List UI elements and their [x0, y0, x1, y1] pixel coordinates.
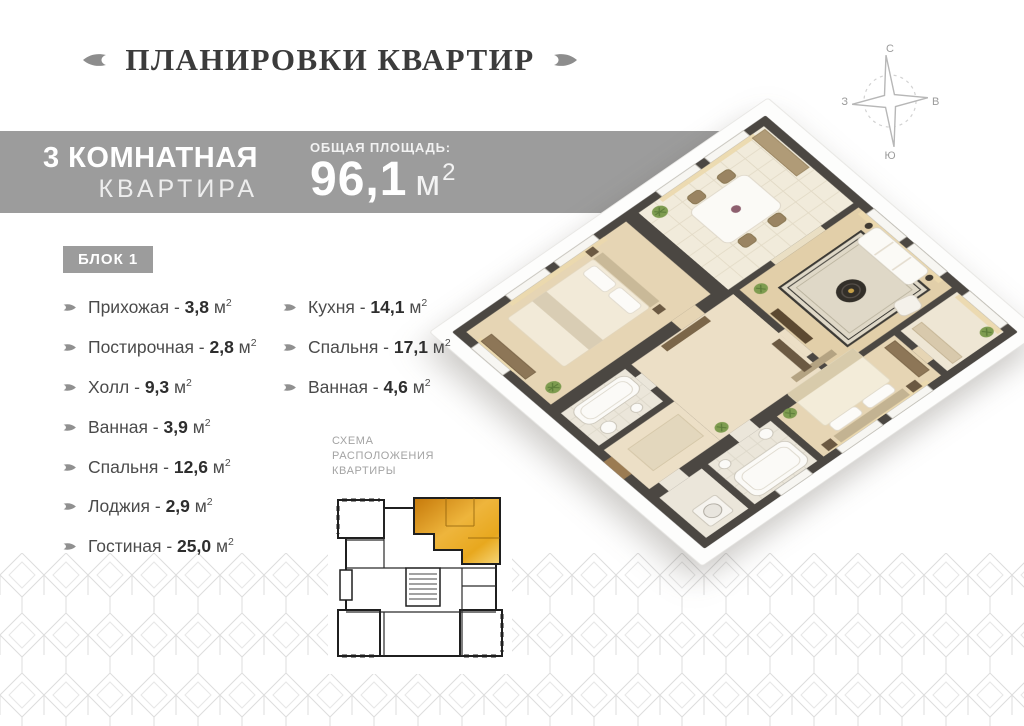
compass-rose: С З В Ю: [838, 42, 942, 160]
fleuron-left-icon: [81, 51, 107, 69]
fleuron-bullet-icon: [283, 342, 297, 353]
page: { "title": "ПЛАНИРОВКИ КВАРТИР", "banner…: [0, 0, 1024, 726]
room-list-item: Прихожая - 3,8 м2: [63, 288, 257, 328]
room-label: Спальня - 12,6 м2: [88, 457, 231, 478]
apartment-type: 3 КОМНАТНАЯ КВАРТИРА: [0, 143, 258, 203]
room-label: Ванная - 3,9 м2: [88, 417, 211, 438]
fleuron-bullet-icon: [63, 501, 77, 512]
page-title: ПЛАНИРОВКИ КВАРТИР: [125, 42, 534, 78]
room-list-item: Ванная - 3,9 м2: [63, 407, 257, 447]
room-list-item: Кухня - 14,1 м2: [283, 288, 451, 328]
compass-south-label: Ю: [884, 150, 895, 160]
room-label: Прихожая - 3,8 м2: [88, 297, 232, 318]
total-area-value: 96,1: [310, 155, 407, 205]
fleuron-bullet-icon: [63, 382, 77, 393]
fleuron-bullet-icon: [63, 541, 77, 552]
room-list-item: Ванная - 4,6 м2: [283, 368, 451, 408]
room-label: Постирочная - 2,8 м2: [88, 337, 257, 358]
fleuron-bullet-icon: [63, 422, 77, 433]
fleuron-bullet-icon: [63, 302, 77, 313]
room-list-item: Постирочная - 2,8 м2: [63, 328, 257, 368]
room-label: Кухня - 14,1 м2: [308, 297, 427, 318]
compass-west-label: З: [841, 96, 848, 108]
building-floor-schematic: [328, 482, 512, 674]
fleuron-bullet-icon: [63, 342, 77, 353]
decorative-lattice-pattern: [0, 553, 1024, 726]
room-list-item: Гостиная - 25,0 м2: [63, 527, 257, 567]
room-list-item: Спальня - 12,6 м2: [63, 447, 257, 487]
room-list-left: Прихожая - 3,8 м2 Постирочная - 2,8 м2 Х…: [63, 288, 257, 567]
total-area: ОБЩАЯ ПЛОЩАДЬ: 96,1 м2: [310, 140, 454, 205]
block-badge: БЛОК 1: [63, 246, 153, 273]
schema-label: СХЕМА РАСПОЛОЖЕНИЯ КВАРТИРЫ: [332, 434, 434, 479]
fleuron-bullet-icon: [283, 302, 297, 313]
room-label: Гостиная - 25,0 м2: [88, 536, 234, 557]
room-label: Ванная - 4,6 м2: [308, 377, 431, 398]
header: ПЛАНИРОВКИ КВАРТИР: [70, 42, 590, 78]
fleuron-bullet-icon: [63, 462, 77, 473]
compass-star: [848, 52, 932, 150]
compass-east-label: В: [932, 96, 939, 108]
room-list-right: Кухня - 14,1 м2 Спальня - 17,1 м2 Ванная…: [283, 288, 451, 407]
compass-north-label: С: [886, 43, 894, 55]
room-list-item: Спальня - 17,1 м2: [283, 328, 451, 368]
room-label: Спальня - 17,1 м2: [308, 337, 451, 358]
fleuron-right-icon: [553, 51, 579, 69]
room-label: Лоджия - 2,9 м2: [88, 496, 213, 517]
room-list-item: Холл - 9,3 м2: [63, 368, 257, 408]
room-list-item: Лоджия - 2,9 м2: [63, 487, 257, 527]
schema-stair-core: [406, 568, 440, 606]
apartment-type-line1: 3 КОМНАТНАЯ: [0, 143, 258, 173]
apartment-type-line2: КВАРТИРА: [0, 176, 258, 202]
room-label: Холл - 9,3 м2: [88, 377, 192, 398]
total-area-unit: м2: [415, 161, 453, 204]
fleuron-bullet-icon: [283, 382, 297, 393]
